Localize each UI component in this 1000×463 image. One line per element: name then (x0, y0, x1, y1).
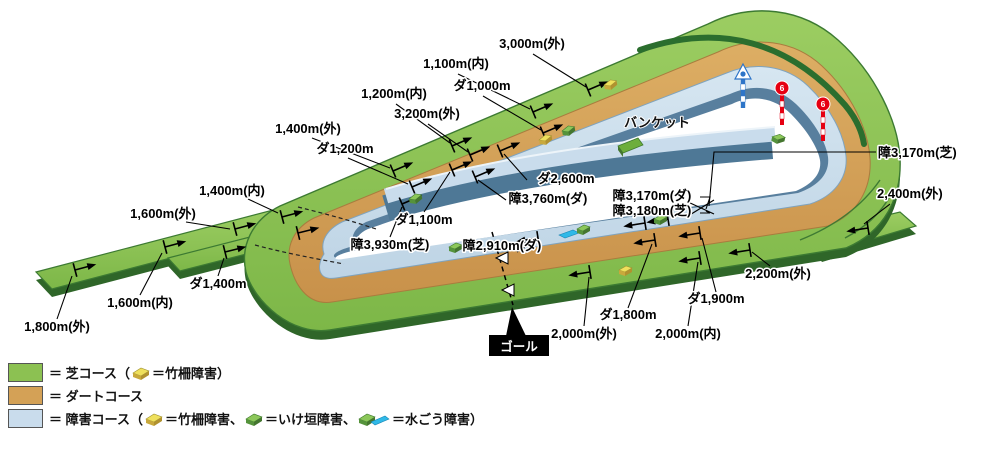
distance-label: 1,100m(内) (423, 56, 489, 71)
legend-text: ＝竹柵障害、 (165, 409, 243, 428)
furlong-pole-digit: 6 (821, 99, 826, 109)
distance-label: 障3,930m(芝) (351, 237, 430, 252)
racecourse-diagram-page: ゴール (0, 0, 1000, 463)
distance-label: 1,800m(外) (24, 319, 90, 334)
distance-label: ダ1,000m (453, 78, 510, 93)
distance-label: 1,600m(内) (107, 295, 173, 310)
distance-label: 1,400m(内) (199, 183, 265, 198)
water-obstacle-icon (358, 411, 390, 427)
distance-label: 障2,910m(ダ) (463, 238, 542, 253)
distance-label: 2,400m(外) (877, 186, 943, 201)
legend-row-turf: ＝ 芝コース（ ＝竹柵障害） (8, 363, 483, 382)
legend-text: ＝いけ垣障害、 (265, 409, 356, 428)
bamboo-obstacle-icon (132, 365, 150, 381)
legend-row-jump: ＝ 障害コース（ ＝竹柵障害、 ＝いけ垣障害、 ＝水ごう障害） (8, 409, 483, 428)
distance-label: ダ1,100m (395, 212, 452, 227)
distance-label: 障3,170m(芝) (878, 145, 957, 160)
banquet-label: バンケット (624, 115, 690, 130)
dirt-swatch (8, 386, 43, 405)
distance-label: ダ1,800m (599, 307, 656, 322)
distance-label: ダ2,600m (537, 171, 594, 186)
bamboo-obstacle-icon (145, 411, 163, 427)
hedge-obstacle-icon (245, 411, 263, 427)
legend-text: ＝ ダートコース (49, 386, 143, 405)
distance-label: 障3,180m(芝) (613, 203, 692, 218)
distance-label: 2,000m(内) (655, 326, 721, 341)
legend-text: ＝ 芝コース（ (49, 363, 130, 382)
turf-swatch (8, 363, 43, 382)
distance-label: 1,600m(外) (130, 206, 196, 221)
jump-swatch (8, 409, 43, 428)
distance-label: 障3,760m(ダ) (509, 191, 588, 206)
goal-label: ゴール (500, 339, 538, 354)
legend: ＝ 芝コース（ ＝竹柵障害） ＝ ダートコース ＝ 障害コース（ ＝竹柵障害、 … (8, 363, 483, 428)
distance-label: 3,200m(外) (394, 106, 460, 121)
distance-label: 2,200m(外) (745, 266, 811, 281)
distance-label: 3,000m(外) (499, 36, 565, 51)
legend-text: ＝竹柵障害） (152, 363, 230, 382)
distance-label: 2,000m(外) (551, 326, 617, 341)
distance-label: 1,400m(外) (275, 121, 341, 136)
distance-label: ダ1,400m (189, 276, 246, 291)
distance-label: 障3,170m(ダ) (613, 188, 692, 203)
distance-label: ダ1,900m (687, 291, 744, 306)
distance-label: 1,200m(内) (361, 86, 427, 101)
legend-row-dirt: ＝ ダートコース (8, 386, 483, 405)
distance-label: ダ1,200m (316, 141, 373, 156)
legend-text: ＝ 障害コース（ (49, 409, 143, 428)
furlong-pole-digit: 6 (780, 83, 785, 93)
legend-text: ＝水ごう障害） (392, 409, 483, 428)
